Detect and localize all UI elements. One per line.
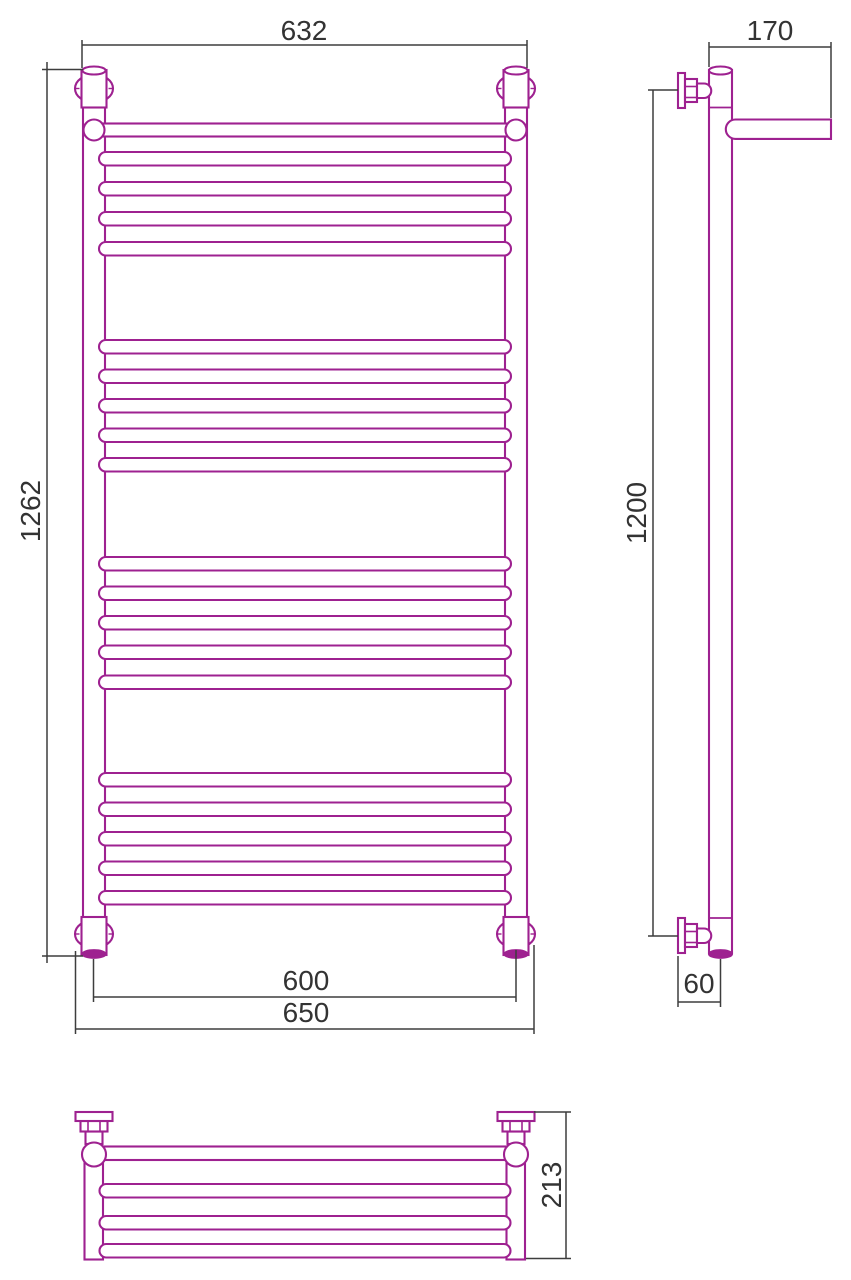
tube-cap-top-right [505,67,528,75]
rung [99,182,511,196]
rung [99,803,511,817]
dimension-label-axle-spacing: 600 [283,965,330,996]
drawing-canvas: 6321262600650170120060213 [0,0,851,1280]
rung [99,616,511,630]
rung [99,557,511,571]
valve-nut-right [503,1121,530,1132]
tube-cap-top-left [83,67,106,75]
dimension-label-bracket-span: 650 [283,997,330,1028]
tube-cap-top [709,67,732,75]
valve-nut-left [81,1121,108,1132]
rung [99,862,511,876]
right-tube [505,70,527,953]
rung [99,429,511,443]
rung [99,676,511,690]
shelf-bar [100,1184,511,1198]
shelf-front-bar [94,1147,516,1161]
left-tube [83,70,105,953]
ball-joint-right [504,1143,528,1167]
rung [99,212,511,226]
rung [99,340,511,354]
dimension-label-top-view-depth: 213 [536,1162,567,1209]
rung [99,242,511,256]
dimension-label-overall-width: 632 [281,15,328,46]
rung [99,891,511,905]
shelf-bar-side [726,120,831,139]
rung [99,458,511,472]
valve-plug-bottom [697,929,711,944]
collar-top-left [82,70,107,108]
rung [99,587,511,601]
rung [99,646,511,660]
rung [99,152,511,166]
rung [99,399,511,413]
tube [709,70,732,953]
rung [99,370,511,384]
shelf-front-bar [94,124,516,137]
dimension-label-shelf-depth: 170 [747,15,794,46]
ball-joint-left [82,1143,106,1167]
tube-cap-bottom [709,950,732,958]
shelf-ball-joint-right [506,120,527,141]
valve-nut-bottom [685,924,697,947]
technical-drawing: 6321262600650170120060213 [0,0,851,1280]
dimension-label-wall-offset: 60 [683,968,714,999]
shelf-bar [100,1244,511,1258]
dimension-label-connection-height: 1200 [621,482,652,544]
valve-nut-top [685,79,697,102]
valve-flange-right [498,1112,535,1121]
tube-cap-bottom-left [83,950,106,958]
valve-plug-top [697,84,711,99]
collar-top-right [504,70,529,108]
shelf-bar [100,1216,511,1230]
rung [99,832,511,846]
valve-flange-left [76,1112,113,1121]
rung [99,773,511,787]
dimension-label-overall-height: 1262 [15,480,46,542]
shelf-ball-joint-left [84,120,105,141]
